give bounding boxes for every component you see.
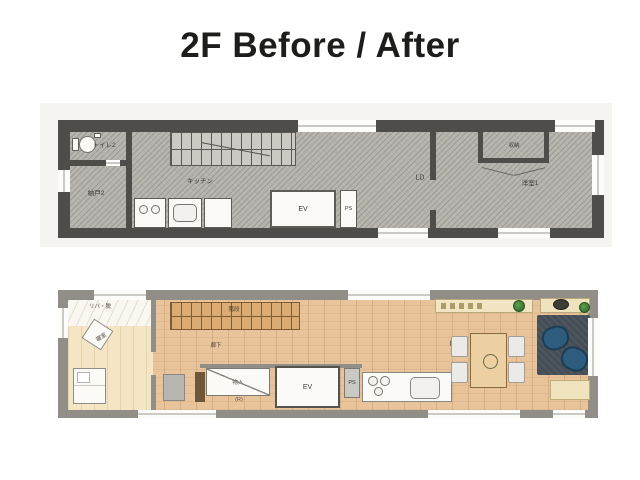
bed	[73, 368, 106, 404]
room-label-western-room: 洋室1	[522, 177, 539, 187]
window	[58, 170, 70, 192]
window	[553, 410, 585, 418]
storage-diagonal-line	[207, 369, 269, 395]
room-label-utility: リバ・脱	[89, 302, 111, 310]
partition-wall	[430, 132, 436, 180]
room-label-closet: 収納	[508, 141, 519, 149]
room-label-pipe-shaft: PS	[345, 206, 352, 212]
toilet-cistern	[94, 133, 101, 138]
dining-chair	[451, 336, 468, 357]
storage-note-label: (R)	[235, 397, 243, 403]
dining-chair	[508, 336, 525, 357]
room-label-pipe-shaft: PS	[348, 380, 355, 386]
stove-unit	[134, 198, 166, 228]
stove-burner	[380, 376, 390, 386]
room-label-storage-room: 納戸2	[88, 187, 105, 197]
pillow	[77, 372, 90, 383]
storage-box: 物入	[206, 368, 270, 396]
partition-wall	[151, 300, 156, 352]
pipe-shaft-box: PS	[340, 190, 357, 228]
kitchen-counter	[204, 198, 232, 228]
closet-wall	[478, 132, 483, 158]
room-label-toilet: トイレ2	[92, 139, 115, 149]
room-label-hallway: 廊下	[210, 341, 221, 349]
partition-wall	[126, 132, 132, 228]
pipe-shaft-box: PS	[344, 368, 360, 398]
kitchen-sink	[410, 377, 440, 399]
window	[592, 155, 604, 195]
window	[378, 228, 428, 238]
room-label-elevator: EV	[298, 206, 307, 213]
page: 2F Before / After トイレ2 納戸2 キッチン	[0, 0, 640, 480]
room-label-stairs: 階段	[228, 305, 239, 313]
after-floor-plan: リバ・脱 寝室 階段 廊下 物入 (R) EV PS	[58, 290, 598, 418]
window	[588, 318, 598, 376]
partition-wall	[151, 375, 156, 410]
page-title: 2F Before / After	[0, 26, 640, 66]
stairs-midline	[171, 316, 299, 317]
door-opening	[106, 160, 120, 166]
window	[428, 410, 520, 418]
window	[348, 290, 430, 300]
stove-burner	[374, 387, 383, 396]
room-label-kitchen: キッチン	[187, 175, 213, 185]
window	[298, 120, 376, 132]
utility-cabinet	[163, 374, 185, 401]
window	[555, 120, 595, 132]
elevator-box: EV	[275, 366, 340, 408]
kitchen-sink	[173, 204, 197, 222]
stairs-before	[170, 132, 296, 166]
stove-burner	[151, 205, 160, 214]
plant-icon	[513, 300, 525, 312]
toilet-tank	[72, 138, 79, 151]
room-label-living-dining: LD	[416, 175, 425, 182]
blanket-line	[74, 385, 105, 386]
window	[498, 228, 550, 238]
plant-icon	[579, 302, 590, 313]
closet-wall	[478, 158, 549, 163]
dining-chair	[451, 362, 468, 383]
window	[138, 410, 216, 418]
table-decor	[483, 354, 498, 369]
dining-chair	[508, 362, 525, 383]
door-panel	[195, 372, 205, 402]
plant-pot-icon	[553, 299, 569, 310]
kitchen-sink-unit	[168, 198, 202, 228]
partition-wall	[430, 210, 436, 228]
window	[58, 308, 68, 338]
shelf-decor	[441, 303, 483, 309]
stove-burner	[139, 205, 148, 214]
window	[94, 290, 146, 300]
dining-table	[470, 333, 507, 388]
bench-seat	[550, 380, 590, 400]
closet-wall	[544, 132, 549, 158]
elevator-box: EV	[270, 190, 336, 228]
before-floor-plan: トイレ2 納戸2 キッチン EV PS LD 収	[58, 120, 604, 238]
room-label-elevator: EV	[303, 384, 312, 391]
stove-burner	[368, 376, 378, 386]
